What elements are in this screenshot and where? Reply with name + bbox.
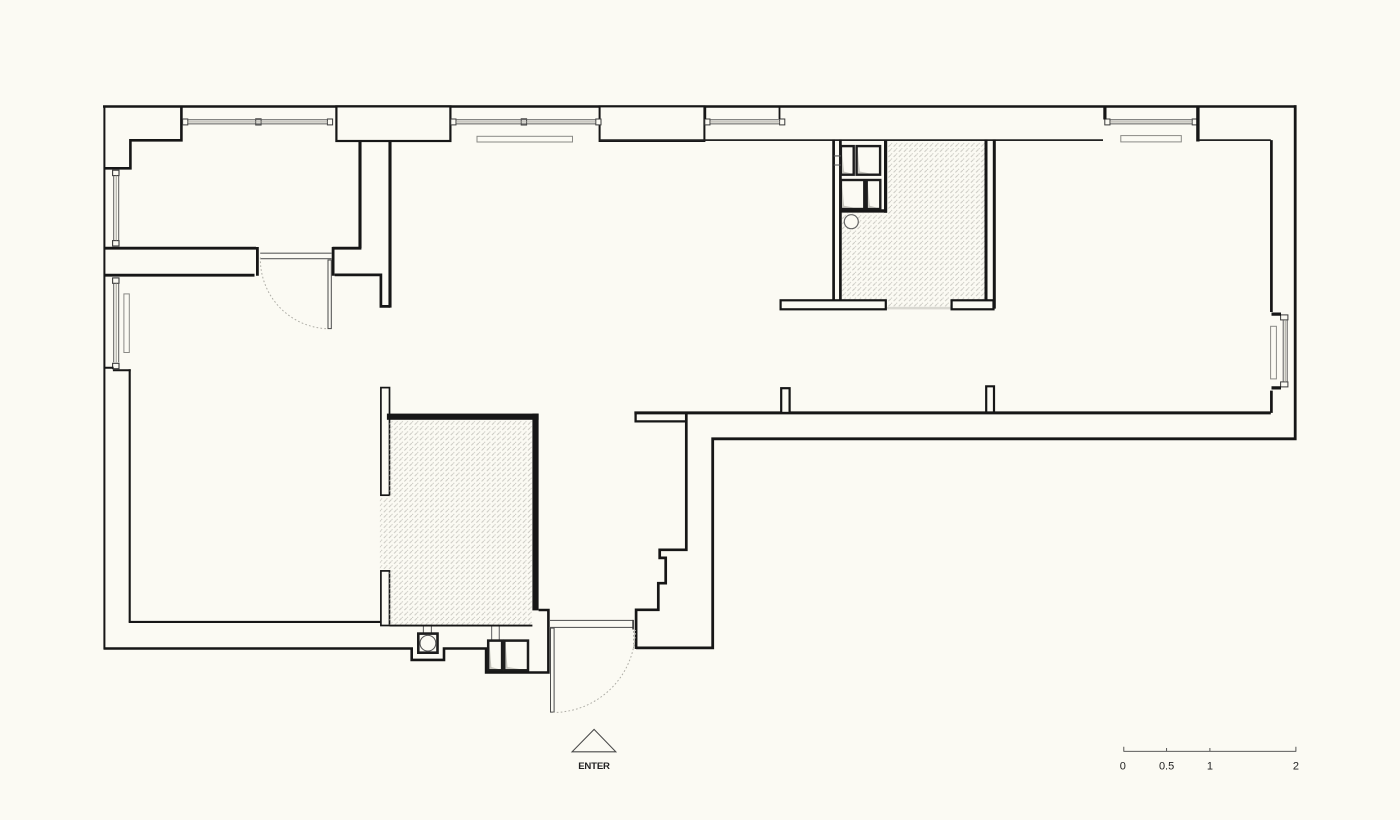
svg-text:0: 0 <box>1120 761 1126 773</box>
svg-text:0.5: 0.5 <box>1159 761 1174 773</box>
svg-text:ENTER: ENTER <box>578 761 610 772</box>
svg-text:2: 2 <box>1293 761 1299 773</box>
svg-text:1: 1 <box>1207 761 1213 773</box>
